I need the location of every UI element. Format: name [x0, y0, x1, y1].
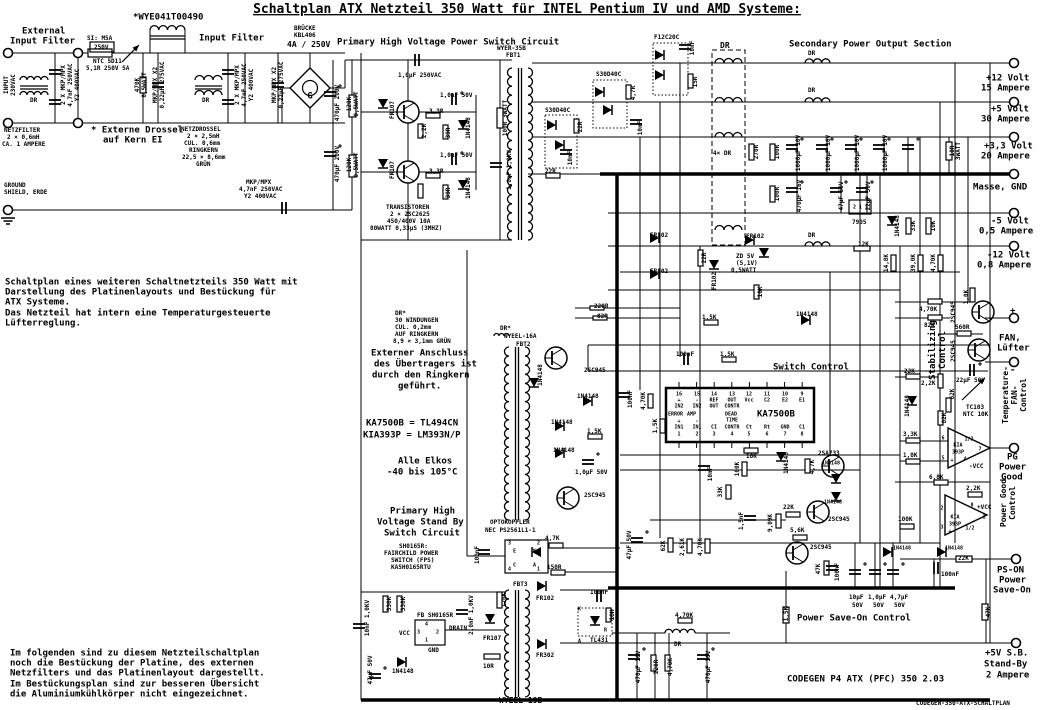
- schematic-label: Externer Anschluss: [371, 349, 469, 359]
- schematic-label: 2SC945: [584, 367, 606, 374]
- schematic-label: Y2 400VAC: [248, 68, 255, 101]
- schematic-label: +5V S.B.: [985, 649, 1028, 659]
- schematic-label: 1/2: [965, 525, 974, 531]
- schematic-label: 120K: [501, 592, 508, 607]
- schematic-label: Schaltplan eines weiteren Schaltnetzteil…: [5, 277, 298, 288]
- resistor: [742, 462, 747, 476]
- schematic-label: 100nF: [627, 390, 634, 408]
- schematic-label: 3WATT: [955, 142, 962, 160]
- schematic-label: 470μF 200V: [334, 146, 341, 183]
- schematic-label: 1: [537, 566, 540, 572]
- schematic-label: Vcc: [744, 397, 753, 403]
- schematic-label: * Externe Drossel: [91, 126, 183, 136]
- resistor: [928, 315, 942, 320]
- schematic-label: 1N4148: [577, 393, 599, 400]
- schematic-label: KIA393P = LM393N/P: [363, 431, 461, 441]
- schematic-label: 4,70K: [930, 254, 937, 272]
- schematic-label: Input Filter: [10, 36, 76, 47]
- schematic-label: SWITCH (FPS): [391, 557, 434, 564]
- schematic-label: 3: [940, 524, 943, 530]
- schematic-label: 1N4148: [904, 395, 911, 417]
- schematic-label: GND: [780, 424, 789, 430]
- schematic-label: 5,6K: [790, 527, 805, 534]
- schematic-label: KIA: [953, 442, 962, 448]
- schematic-label: 8,9 × 3,1mm GRÜN: [393, 338, 451, 345]
- schematic-label: durch den Ringkern: [372, 370, 470, 381]
- schematic-label: 330K: [386, 596, 393, 611]
- schematic-label: DR: [808, 232, 816, 239]
- schematic-label: 1,5K: [587, 428, 602, 435]
- schematic-label: FR107: [389, 161, 396, 179]
- schematic-label: 80WATT 0,33μS (3MHZ): [370, 225, 442, 232]
- schematic-label: 100nF: [590, 589, 608, 596]
- schematic-label: 47K: [815, 563, 822, 574]
- schematic-label: 1N4148: [783, 452, 790, 474]
- terminal: [1010, 59, 1019, 68]
- schematic-label: 1,0μF 50V: [440, 152, 473, 159]
- schematic-label: 62K: [949, 388, 956, 399]
- schematic-label: 4,70K: [667, 658, 674, 676]
- schematic-label: 1: [677, 431, 680, 437]
- schematic-label: +: [950, 457, 953, 463]
- resistor: [891, 255, 896, 271]
- resistor: [687, 539, 692, 553]
- schematic-label: 150R: [547, 564, 562, 571]
- schematic-label: 4,7K: [545, 535, 560, 542]
- schematic-label: 9,09K: [767, 514, 774, 532]
- schematic-label: Schaltplan ATX Netzteil 350 Watt für INT…: [253, 2, 801, 17]
- schematic-label: Secondary Power Output Section: [789, 39, 952, 50]
- schematic-label: +VCC: [977, 504, 992, 511]
- schematic-label: 4,70K: [919, 306, 937, 313]
- resistor: [968, 492, 982, 497]
- schematic-label: 39,0K: [910, 254, 917, 272]
- schematic-label: 2SA733: [818, 450, 840, 457]
- schematic-label: DR: [808, 50, 816, 57]
- schematic-label: 2SC945: [950, 340, 957, 362]
- schematic-label: 1N4148: [945, 545, 963, 551]
- resistor: [660, 419, 665, 433]
- schematic-label: 1: [425, 637, 428, 643]
- schematic-label: ZD 5V: [736, 253, 754, 260]
- schematic-label: KA7500B: [757, 410, 796, 420]
- schematic-label: 330K: [400, 596, 407, 611]
- schematic-label: F12C20C: [654, 34, 680, 41]
- schematic-label: Rt: [764, 424, 770, 430]
- schematic-label: Input Filter: [199, 33, 265, 44]
- terminal: [74, 119, 83, 128]
- schematic-label: 1N4148: [537, 364, 544, 386]
- schematic-label: 10μF: [849, 594, 864, 601]
- schematic-label: Control: [1019, 378, 1028, 412]
- schematic-label: 450/400V 10A: [387, 218, 431, 225]
- schematic-label: 2 × 2SC2625: [390, 211, 430, 218]
- schematic-label: 22K: [904, 368, 915, 375]
- schematic-label: 1,5K: [652, 418, 659, 433]
- schematic-label: 100R: [774, 186, 781, 201]
- schematic-label: 22μF 50V: [956, 377, 985, 384]
- schematic-label: TIME: [726, 417, 738, 423]
- schematic-label: KA7500B = TL494CN: [366, 419, 458, 429]
- terminal: [1012, 639, 1021, 648]
- schematic-label: C1: [799, 424, 805, 430]
- schematic-label: 4: [730, 431, 733, 437]
- schematic-label: 0,5 Ampere: [979, 227, 1034, 237]
- schematic-label: 10nF: [707, 466, 714, 481]
- schematic-label: +3,3 Volt: [984, 142, 1033, 152]
- schematic-label: 10K: [609, 609, 616, 620]
- schematic-label: 22R: [545, 168, 556, 175]
- schematic-label: 4,7R: [630, 85, 637, 100]
- schematic-label: 62K: [660, 540, 667, 551]
- terminal: [1010, 170, 1019, 179]
- schematic-label: FB SH0165R: [417, 612, 454, 619]
- resistor: [726, 485, 731, 499]
- schematic-label: 2,2K: [421, 123, 428, 138]
- schematic-label: Voltage Stand By: [377, 518, 464, 528]
- schematic-label: 4: [508, 566, 511, 572]
- schematic-label: GND: [428, 647, 439, 654]
- schematic-label: DR: [808, 87, 816, 94]
- schematic-label: WYER-35B: [497, 45, 526, 52]
- schematic-canvas: Schaltplan ATX Netzteil 350 Watt für INT…: [0, 0, 1050, 710]
- schematic-label: 2: [695, 431, 698, 437]
- schematic-label: 1000μF 16V: [825, 135, 832, 172]
- schematic-label: KIA: [950, 514, 959, 520]
- schematic-label: 1,5nF: [738, 512, 745, 530]
- schematic-label: OUT: [709, 403, 718, 409]
- schematic-label: 4A / 250V: [287, 40, 331, 49]
- schematic-label: DR*: [395, 310, 406, 317]
- schematic-label: 22R: [577, 121, 584, 132]
- schematic-label: 4: [963, 456, 966, 462]
- terminal: [4, 206, 13, 215]
- resistor: [900, 524, 914, 529]
- schematic-label: 50V: [873, 602, 884, 609]
- schematic-label: Y2 400VAC: [74, 68, 81, 101]
- schematic-label: FR102: [650, 232, 668, 239]
- resistor: [970, 288, 975, 302]
- schematic-label: 47K: [985, 606, 992, 617]
- schematic-label: 220R: [653, 659, 660, 674]
- schematic-label: 1,0μF 250VAC: [398, 72, 442, 79]
- schematic-label: CUL. 0,6mm: [184, 140, 221, 147]
- schematic-label: 10K: [930, 220, 937, 231]
- schematic-label: 2 1 3: [853, 204, 868, 210]
- schematic-label: C: [513, 562, 516, 568]
- schematic-label: VCC: [399, 630, 410, 637]
- schematic-label: 4× DR: [713, 150, 731, 157]
- resistor: [938, 255, 943, 271]
- schematic-label: 7905: [852, 219, 867, 226]
- schematic-label: AUF RINGKERN: [395, 331, 439, 338]
- schematic-label: 50V: [894, 602, 905, 609]
- schematic-label: G: [307, 92, 312, 102]
- schematic-label: MKP/MPX X2: [152, 67, 159, 104]
- schematic-label: Switch Control: [773, 362, 849, 373]
- schematic-label: GRÜN: [196, 161, 211, 168]
- schematic-label: 1N4148: [893, 545, 911, 551]
- schematic-label: 120K: [346, 157, 353, 172]
- resistor: [648, 394, 653, 408]
- schematic-label: 100nF: [941, 571, 959, 578]
- schematic-label: 4,70K: [640, 392, 647, 410]
- schematic-label: 7: [978, 446, 981, 452]
- schematic-label: auf Kern EI: [103, 136, 163, 146]
- schematic-label: +: [948, 528, 951, 534]
- schematic-label: 250V: [94, 44, 109, 51]
- schematic-label: SH0165R:: [399, 543, 428, 550]
- schematic-label: 4,7nF 250VAC: [241, 63, 248, 107]
- schematic-label: 14,8K: [883, 254, 890, 272]
- schematic-label: 47μF 50V: [626, 530, 633, 559]
- schematic-label: Stabilizing: [927, 320, 938, 380]
- schematic-label: -40 bis 105°C: [387, 467, 457, 478]
- schematic-label: RINGKERN: [189, 147, 218, 154]
- schematic-label: NETZDROSSEL: [181, 126, 221, 133]
- schematic-label: 3: [712, 431, 715, 437]
- schematic-label: 2SC945: [950, 301, 957, 323]
- schematic-label: 6: [941, 435, 944, 441]
- schematic-label: 2 Ampere: [986, 671, 1030, 681]
- schematic-label: Temperature-: [1001, 366, 1010, 424]
- schematic-label: Power: [999, 576, 1027, 586]
- schematic-label: Primary High: [390, 506, 455, 517]
- schematic-label: 0,22μF 275VAC: [159, 61, 166, 108]
- schematic-label: E2: [782, 397, 788, 403]
- schematic-label: KA5H0165RTU: [391, 564, 431, 571]
- schematic-label: -12 Volt: [987, 251, 1030, 261]
- schematic-label: 10nF: [689, 40, 696, 55]
- schematic-label: 1,5K: [702, 314, 717, 321]
- schematic-label: WYEEL-19B: [499, 696, 543, 705]
- schematic-label: 1,0μF 50V: [440, 92, 473, 99]
- resistor: [906, 438, 920, 443]
- schematic-label: 100nF: [834, 563, 841, 581]
- schematic-label: 30 WINDUNGEN: [395, 317, 439, 324]
- schematic-label: 2SC945: [810, 544, 832, 551]
- schematic-label: 1000μF 10V: [854, 135, 861, 172]
- schematic-label: Netzfilters und das Platinenlayout darge…: [10, 668, 265, 679]
- schematic-label: 0,5WATT: [353, 152, 360, 178]
- schematic-label: 1,0K: [903, 452, 918, 459]
- schematic-label: FR102: [711, 272, 718, 290]
- schematic-label: 4,7nF 250VAC: [67, 63, 74, 107]
- schematic-label: 30 Ampere: [981, 115, 1030, 125]
- schematic-label: FR102: [650, 268, 668, 275]
- schematic-label: 33K: [717, 486, 724, 497]
- resistor: [938, 374, 943, 388]
- schematic-label: 0,5WATT: [141, 72, 148, 98]
- schematic-label: ERROR: [668, 411, 684, 417]
- schematic-label: CA. 1 AMPERE: [2, 141, 46, 148]
- schematic-label: 4,7μF: [890, 594, 908, 601]
- schematic-label: 15 Ampere: [981, 84, 1030, 94]
- schematic-label: geführt.: [398, 382, 441, 392]
- schematic-label: Masse, GND: [973, 183, 1028, 193]
- schematic-label: des Übertragers ist: [374, 359, 477, 370]
- schematic-label: 2SC945: [828, 516, 850, 523]
- schematic-label: MKP/MPX X2: [271, 67, 278, 104]
- schematic-label: 1N4148: [553, 447, 575, 454]
- schematic-label: 470μF 200V: [334, 85, 341, 122]
- schematic-label: CODEGEN P4 ATX (PFC) 350 2.03: [787, 675, 944, 685]
- schematic-label: AMP: [687, 411, 696, 417]
- terminal: [4, 49, 13, 58]
- schematic-label: FBT1: [506, 52, 521, 59]
- schematic-label: SHIELD, ERDE: [4, 189, 48, 196]
- schematic-label: -: [1010, 366, 1015, 376]
- schematic-label: 2,2K: [966, 485, 981, 492]
- resistor: [705, 539, 710, 553]
- schematic-label: 10nF: [637, 120, 644, 135]
- schematic-label: NEC PS2561L1-1: [485, 527, 536, 534]
- schematic-label: 4,7K: [809, 459, 816, 474]
- schematic-label: 0,22μF 275VAC: [278, 61, 285, 108]
- schematic-label: TC103: [966, 404, 984, 411]
- schematic-label: 1,0μF: [868, 594, 886, 601]
- schematic-label: 100nF: [474, 546, 481, 564]
- schematic-label: DR: [720, 41, 730, 50]
- schematic-label: GROUND: [4, 182, 26, 189]
- schematic-label: noch die Bestückung der Platine, des ext…: [10, 658, 254, 669]
- resistor: [824, 561, 829, 575]
- terminal: [1010, 444, 1019, 453]
- schematic-label: 1N4148: [796, 311, 818, 318]
- schematic-label: 82R: [597, 313, 608, 320]
- terminal: [1012, 555, 1021, 564]
- resistor: [928, 299, 942, 304]
- schematic-label: S30D40C: [545, 107, 571, 114]
- schematic-label: FAIRCHILD POWER: [384, 550, 439, 557]
- schematic-label: Darstellung des Platinenlayouts und Best…: [5, 287, 277, 298]
- schematic-label: 393P: [949, 521, 961, 527]
- schematic-label: INPUT: [3, 76, 10, 94]
- schematic-label: +: [1010, 307, 1016, 317]
- schematic-label: 6: [765, 431, 768, 437]
- schematic-label: 2 X MKP/MPX: [234, 65, 241, 105]
- schematic-label: FBT2: [516, 341, 531, 348]
- schematic-label: 10K: [757, 286, 764, 297]
- schematic-label: 1N4148: [392, 668, 414, 675]
- schematic-label: External: [22, 27, 65, 37]
- schematic-label: 393P: [952, 449, 964, 455]
- resistor: [957, 331, 971, 336]
- schematic-label: 6,8K: [929, 474, 944, 481]
- schematic-label: E1: [799, 397, 805, 403]
- schematic-label: Stand-By: [984, 660, 1028, 670]
- schematic-label: 100R 3WATT: [502, 100, 509, 137]
- schematic-label: 7: [783, 431, 786, 437]
- schematic-label: Lüfterreglung.: [5, 319, 81, 329]
- schematic-label: 82K: [941, 412, 948, 423]
- resistor: [484, 654, 500, 659]
- schematic-label: S30D40C: [596, 71, 622, 78]
- schematic-label: NETZFILTER: [4, 127, 41, 134]
- schematic-label: FR107: [389, 101, 396, 119]
- schematic-label: 100K: [734, 461, 741, 476]
- schematic-label: 2 × 0,6mH: [7, 134, 40, 141]
- schematic-label: IN1: [692, 424, 701, 430]
- schematic-label: Control: [1008, 486, 1017, 520]
- schematic-label: PG: [1007, 453, 1018, 463]
- schematic-label: 3,3R: [429, 108, 444, 115]
- schematic-label: FAN-: [1010, 385, 1019, 404]
- schematic-label: NTC 5D11: [93, 58, 122, 65]
- schematic-label: SI: M5A: [87, 35, 113, 42]
- schematic-label: 12K: [858, 241, 869, 248]
- schematic-label: 1,5K: [783, 606, 790, 621]
- schematic-label: 2,0nF 1,0KV: [468, 595, 475, 635]
- schematic-label: FBT3: [513, 581, 528, 588]
- schematic-label: 8: [800, 431, 803, 437]
- schematic-label: 1N4148: [551, 419, 573, 426]
- schematic-label: 22R: [701, 252, 708, 263]
- schematic-label: CI: [711, 424, 717, 430]
- schematic-label: 1N4148: [822, 460, 840, 466]
- schematic-page: Schaltplan ATX Netzteil 350 Watt für INT…: [0, 0, 1050, 710]
- schematic-label: 4: [425, 621, 428, 627]
- schematic-label: 5: [941, 455, 944, 461]
- schematic-label: 50V: [852, 602, 863, 609]
- schematic-label: Y2 400VAC: [244, 193, 277, 200]
- schematic-label: A: [533, 562, 536, 568]
- schematic-label: 2: [436, 629, 439, 635]
- schematic-label: 2SC945: [584, 492, 606, 499]
- schematic-label: 5: [747, 431, 750, 437]
- schematic-label: +5 Volt: [991, 105, 1029, 115]
- schematic-label: 2: [537, 540, 540, 546]
- schematic-label: IN1: [674, 424, 683, 430]
- schematic-label: 1000μF 10V: [795, 135, 802, 172]
- schematic-label: DR: [202, 97, 210, 104]
- terminal: [1010, 242, 1019, 251]
- resistor: [549, 543, 563, 548]
- schematic-label: OPTOKOPPLER: [490, 519, 530, 526]
- schematic-label: PS-ON: [997, 566, 1024, 576]
- schematic-label: TL431: [590, 637, 608, 644]
- schematic-label: 10nF: [567, 150, 574, 165]
- schematic-label: TRANSISTOREN: [386, 204, 430, 211]
- schematic-label: 5,1R 250V 5A: [86, 65, 130, 72]
- schematic-label: 1: [982, 514, 985, 520]
- schematic-label: 1N4148: [465, 117, 472, 139]
- schematic-label: 230VAC: [10, 74, 17, 96]
- schematic-label: C2: [764, 397, 770, 403]
- schematic-label: KBL406: [294, 32, 316, 39]
- schematic-label: DR*: [500, 325, 511, 332]
- schematic-label: 470μF 16V: [796, 179, 803, 212]
- schematic-label: CONTR: [724, 424, 740, 430]
- schematic-label: 1N4148: [894, 215, 901, 237]
- schematic-label: 39R: [445, 127, 452, 138]
- schematic-label: 33K: [910, 220, 917, 231]
- schematic-label: Im Bestückungsplan sind zur besseren Übe…: [10, 679, 259, 690]
- schematic-label: 100K: [898, 516, 913, 523]
- schematic-label: 220R: [594, 303, 609, 310]
- schematic-label: IN2: [674, 403, 683, 409]
- schematic-label: DR: [674, 641, 682, 648]
- schematic-label: MKP/MPX: [246, 179, 272, 186]
- schematic-label: 470μF 16V: [705, 650, 712, 683]
- schematic-label: 560R: [955, 324, 970, 331]
- schematic-label: FR102: [746, 233, 764, 240]
- schematic-label: IN2: [692, 403, 701, 409]
- schematic-label: 15R: [692, 76, 699, 87]
- schematic-label: 47μF 50V: [367, 655, 374, 684]
- schematic-label: DRAIN: [449, 625, 467, 632]
- resistor: [918, 255, 923, 271]
